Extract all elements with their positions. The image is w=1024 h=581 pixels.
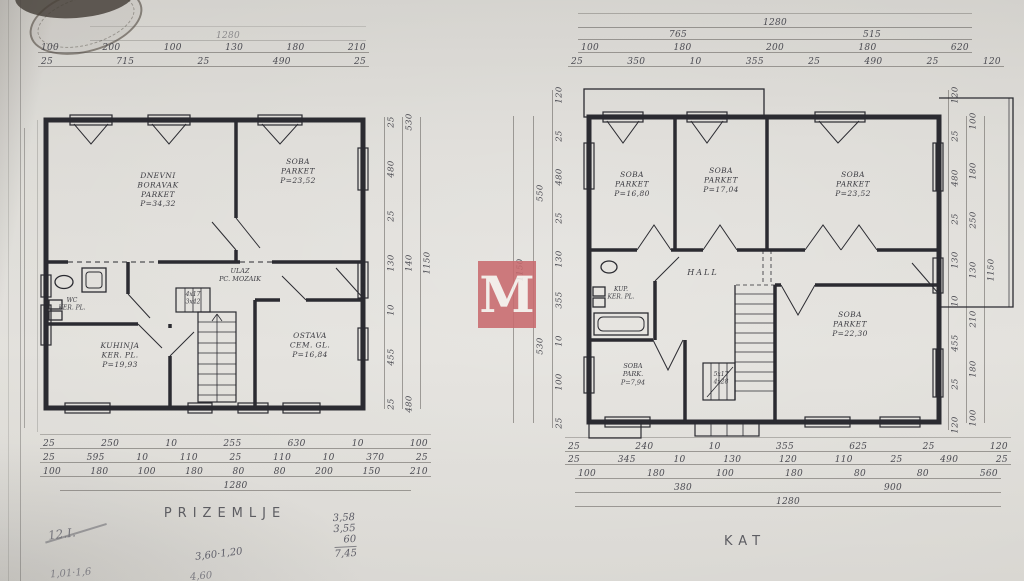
dimension-value: 380: [674, 483, 692, 493]
dimension-value: 595: [87, 453, 105, 463]
dimension-value: 120: [779, 455, 797, 465]
dimension-value: 25: [229, 453, 241, 463]
dimension-value: 110: [273, 453, 291, 463]
room-label-dnevni-boravak: DNEVNIBORAVAKPARKETP=34,32: [136, 171, 178, 208]
dim-col: 530140480: [402, 117, 416, 409]
dimension-value: 25: [416, 453, 428, 463]
wc-fixtures: [49, 268, 106, 320]
room-label-ostava: OSTAVACEM. GL.P=16,84: [290, 331, 330, 359]
room-label-soba: SOBAPARKETP=23,52: [279, 157, 316, 185]
dimension-value: 80: [274, 467, 286, 477]
dimension-value: 130: [723, 455, 741, 465]
room-label-ulaz: ULAZPC. MOZAIK: [218, 267, 262, 283]
dimension-value: 100: [578, 469, 596, 479]
dimension-value: 25: [808, 57, 820, 67]
dimension-value: 25: [386, 210, 396, 221]
dimension-value: 560: [980, 469, 998, 479]
dimension-value: 1280: [776, 497, 800, 507]
dimension-value: 180: [90, 467, 108, 477]
watermark-badge: M: [478, 261, 536, 328]
dimension-value: 620: [951, 43, 969, 53]
dimension-value: 530: [405, 113, 415, 130]
plan-title-kat: KAT: [700, 534, 790, 549]
handwritten-calc-partial: 4,60: [190, 570, 213, 581]
dim-col: 1150: [420, 117, 434, 409]
dimension-value: 200: [315, 467, 333, 477]
dimension-value: 200: [766, 43, 784, 53]
dimension-value: 100: [43, 467, 61, 477]
dim-row: 1001801001808080200150210: [40, 463, 431, 477]
dimension-value: 355: [746, 57, 764, 67]
dimension-value: 80: [917, 469, 929, 479]
dimension-value: 250: [101, 439, 119, 449]
dim-row: 2559510110251101037025: [40, 449, 431, 463]
dimension-value: 180: [647, 469, 665, 479]
room-label-soba-2352: SOBAPARKETP=23,52: [834, 170, 871, 198]
balcony: [939, 98, 1013, 307]
dimension-value: 345: [618, 455, 636, 465]
dimension-value: 180: [185, 467, 203, 477]
dimension-value: 100: [581, 43, 599, 53]
dimension-value: 180: [287, 43, 305, 53]
dim-row: 765515: [578, 26, 972, 40]
dimension-value: 25: [554, 212, 564, 223]
dimension-value: 630: [288, 439, 306, 449]
dimension-value: 200: [102, 43, 120, 53]
dimension-value: 490: [864, 57, 882, 67]
dimension-value: 80: [232, 467, 244, 477]
dimension-value: 900: [884, 483, 902, 493]
dim-col: 12025480251303551010025: [552, 90, 566, 428]
paper-edge-line: [8, 0, 9, 581]
dimension-value: 100: [138, 467, 156, 477]
dim-row: 380900: [575, 479, 1001, 493]
plan-title-prizemlje: PRIZEMLJE: [130, 506, 320, 521]
handwritten-scribble: 12.I.: [47, 525, 76, 542]
dim-col: 25480251301045525: [384, 117, 398, 409]
dimension-value: 480: [405, 395, 415, 412]
dimension-value: 180: [858, 43, 876, 53]
dimension-value: 25: [354, 57, 366, 67]
dimension-value: 110: [835, 455, 853, 465]
outer-walls: [46, 120, 363, 408]
dim-line: [24, 128, 25, 428]
dimension-value: 10: [554, 335, 564, 346]
room-label-soba-1680: SOBAPARKETP=16,80: [613, 170, 650, 198]
dimension-value: 10: [690, 57, 702, 67]
dimension-value: 10: [386, 304, 396, 315]
dimension-value: 25: [571, 57, 583, 67]
dim-row: 25345101301201102549025: [565, 451, 1011, 465]
dimension-value: 25: [890, 455, 902, 465]
dimension-value: 1150: [423, 252, 433, 275]
floor-plan-prizemlje: DNEVNIBORAVAKPARKETP=34,32 SOBAPARKETP=2…: [40, 112, 370, 414]
dimension-value: 25: [43, 439, 55, 449]
room-label-kuhinja: KUHINJAKER. PL.P=19,93: [100, 341, 140, 369]
dimension-value: 490: [940, 455, 958, 465]
dimension-value: 140: [405, 254, 415, 271]
dimension-value: 130: [387, 254, 397, 271]
interior-walls: [46, 120, 363, 408]
room-label-soba-794: SOBAPARK.P=7,94: [620, 362, 645, 386]
handwritten-calc: 3,60·1,20: [195, 546, 244, 563]
dimension-value: 480: [555, 168, 565, 185]
dimension-value: 25: [197, 57, 209, 67]
sum-total: 7,45: [334, 546, 357, 560]
dimension-value: 10: [165, 439, 177, 449]
dimension-value: 255: [223, 439, 241, 449]
dimension-value: 120: [983, 57, 1001, 67]
dimension-value: 130: [555, 250, 565, 267]
dimension-value: 210: [410, 467, 428, 477]
dimension-value: 110: [180, 453, 198, 463]
dimension-value: 490: [273, 57, 291, 67]
dimension-value: 25: [554, 417, 564, 428]
dimension-value: 210: [348, 43, 366, 53]
dimension-value: 550: [536, 184, 546, 201]
dimension-value: 150: [362, 467, 380, 477]
stairs-label: 5x174x28: [713, 371, 729, 386]
sum-value: 60: [343, 534, 356, 546]
stairs-label: 4x173x42: [185, 291, 201, 306]
outer-walls: [584, 89, 1013, 438]
dimension-value: 80: [854, 469, 866, 479]
dimension-value: 100: [164, 43, 182, 53]
dimension-value: 100: [410, 439, 428, 449]
dimension-value: 25: [927, 57, 939, 67]
dimension-value: 370: [366, 453, 384, 463]
handwritten-partial-left: 1,01·1,6: [50, 567, 92, 581]
dim-row: 100180200180620: [578, 39, 972, 53]
dimension-value: 715: [116, 57, 134, 67]
dimension-value: 25: [554, 130, 564, 141]
room-label-wc: WCKER. PL.: [57, 297, 85, 312]
dim-row: 25350103552549025120: [568, 53, 1004, 67]
dimension-value: 480: [387, 160, 397, 177]
dim-row: 1280: [60, 477, 411, 491]
dimension-value: 25: [386, 398, 396, 409]
dimension-value: 455: [387, 348, 397, 365]
watermark-letter: M: [479, 270, 534, 320]
dimension-value: 10: [323, 453, 335, 463]
dim-row: 257152549025: [38, 53, 369, 67]
dim-row: 1280: [575, 493, 1001, 507]
windows: [41, 115, 368, 413]
dimension-value: 10: [352, 439, 364, 449]
dimension-value: 100: [41, 43, 59, 53]
room-label-hall: HALL: [686, 268, 718, 277]
dimension-value: 120: [555, 86, 565, 103]
dimension-value: 100: [555, 373, 565, 390]
terrace: [584, 89, 764, 117]
dimension-value: 355: [555, 291, 565, 308]
dimension-value: 25: [996, 455, 1008, 465]
room-label-soba-1704: SOBAPARKETP=17,04: [702, 166, 739, 194]
dimension-value: 530: [536, 338, 546, 355]
dimension-value: 180: [785, 469, 803, 479]
dim-row: 1001801001808080560: [575, 465, 1001, 479]
dimension-value: 10: [136, 453, 148, 463]
dimension-value: 25: [41, 57, 53, 67]
floor-plan-kat: SOBAPARKETP=16,80 SOBAPARKETP=17,04 SOBA…: [575, 85, 1020, 445]
dimension-value: 1280: [223, 481, 247, 491]
room-labels: SOBAPARKETP=16,80 SOBAPARKETP=17,04 SOBA…: [606, 166, 870, 386]
dimension-value: 25: [568, 455, 580, 465]
paper-fold-line: [20, 0, 21, 581]
dimension-value: 10: [673, 455, 685, 465]
dim-line: [37, 120, 38, 432]
dimension-value: 100: [716, 469, 734, 479]
dimension-value: 25: [386, 116, 396, 127]
dimension-value: 130: [225, 43, 243, 53]
dimension-value: 25: [43, 453, 55, 463]
room-label-kupaonica: KUP.KER. PL.: [606, 286, 634, 301]
handwritten-sum-column: 3,58 3,55 60 7,45: [313, 512, 357, 561]
dim-row: 100200100130180210: [38, 39, 369, 53]
scanned-floorplan-sheet: 1280 100200100130180210 257152549025 252…: [0, 0, 1024, 581]
room-label-soba-2230: SOBAPARKETP=22,30: [831, 310, 868, 338]
dimension-value: 180: [673, 43, 691, 53]
dim-row: 252501025563010100: [40, 434, 431, 449]
dimension-value: 350: [627, 57, 645, 67]
